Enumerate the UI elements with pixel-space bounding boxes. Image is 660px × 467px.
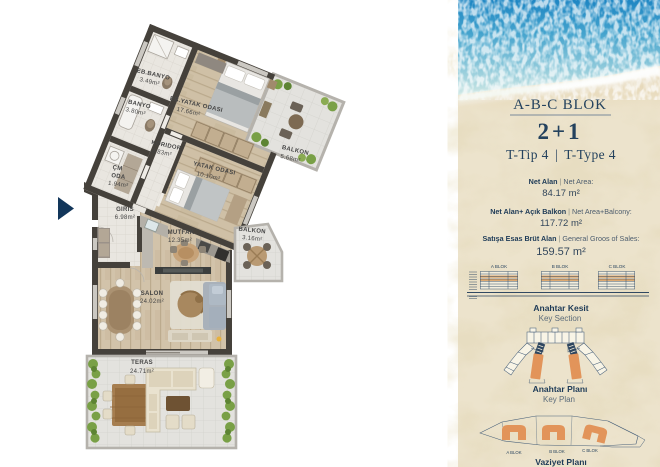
svg-text:Anahtar Planı: Anahtar Planı	[533, 384, 588, 394]
svg-text:GIRIS: GIRIS	[116, 207, 134, 213]
svg-text:MUTFAK: MUTFAK	[168, 230, 195, 236]
svg-text:Key Plan: Key Plan	[543, 395, 575, 404]
svg-text:6.98m²: 6.98m²	[115, 215, 135, 221]
svg-text:84.17 m²: 84.17 m²	[542, 188, 580, 199]
svg-text:C BLOK: C BLOK	[582, 448, 598, 453]
svg-text:TERAS: TERAS	[131, 360, 153, 366]
svg-text:12.35m²: 12.35m²	[168, 238, 192, 244]
svg-text:Net Alan+ Açık Balkon | Net Ar: Net Alan+ Açık Balkon | Net Area+Balcony…	[490, 207, 632, 216]
svg-text:2+1: 2+1	[537, 119, 582, 144]
svg-text:C BLOK: C BLOK	[609, 264, 627, 269]
svg-text:117.72 m²: 117.72 m²	[540, 218, 582, 229]
svg-text:159.57 m²: 159.57 m²	[536, 246, 586, 258]
svg-text:B BLOK: B BLOK	[552, 264, 570, 269]
svg-text:Anahtar Kesit: Anahtar Kesit	[533, 303, 588, 313]
svg-text:Key Section: Key Section	[539, 314, 582, 323]
svg-text:SALON: SALON	[141, 291, 164, 297]
svg-text:Vaziyet Planı: Vaziyet Planı	[535, 457, 587, 467]
svg-text:24.71m²: 24.71m²	[130, 369, 154, 375]
svg-text:A-B-C BLOK: A-B-C BLOK	[513, 97, 606, 113]
svg-text:B BLOK: B BLOK	[549, 449, 565, 454]
svg-text:Satışa Esas Brüt Alan | Genera: Satışa Esas Brüt Alan | General Groos of…	[482, 234, 639, 243]
svg-text:T-Tip 4 | T-Type 4: T-Tip 4 | T-Type 4	[506, 147, 616, 162]
svg-text:A BLOK: A BLOK	[506, 450, 521, 455]
svg-text:24.02m²: 24.02m²	[140, 299, 164, 305]
svg-text:Net Alan | Net Area:: Net Alan | Net Area:	[529, 177, 594, 186]
svg-text:A BLOK: A BLOK	[491, 264, 508, 269]
